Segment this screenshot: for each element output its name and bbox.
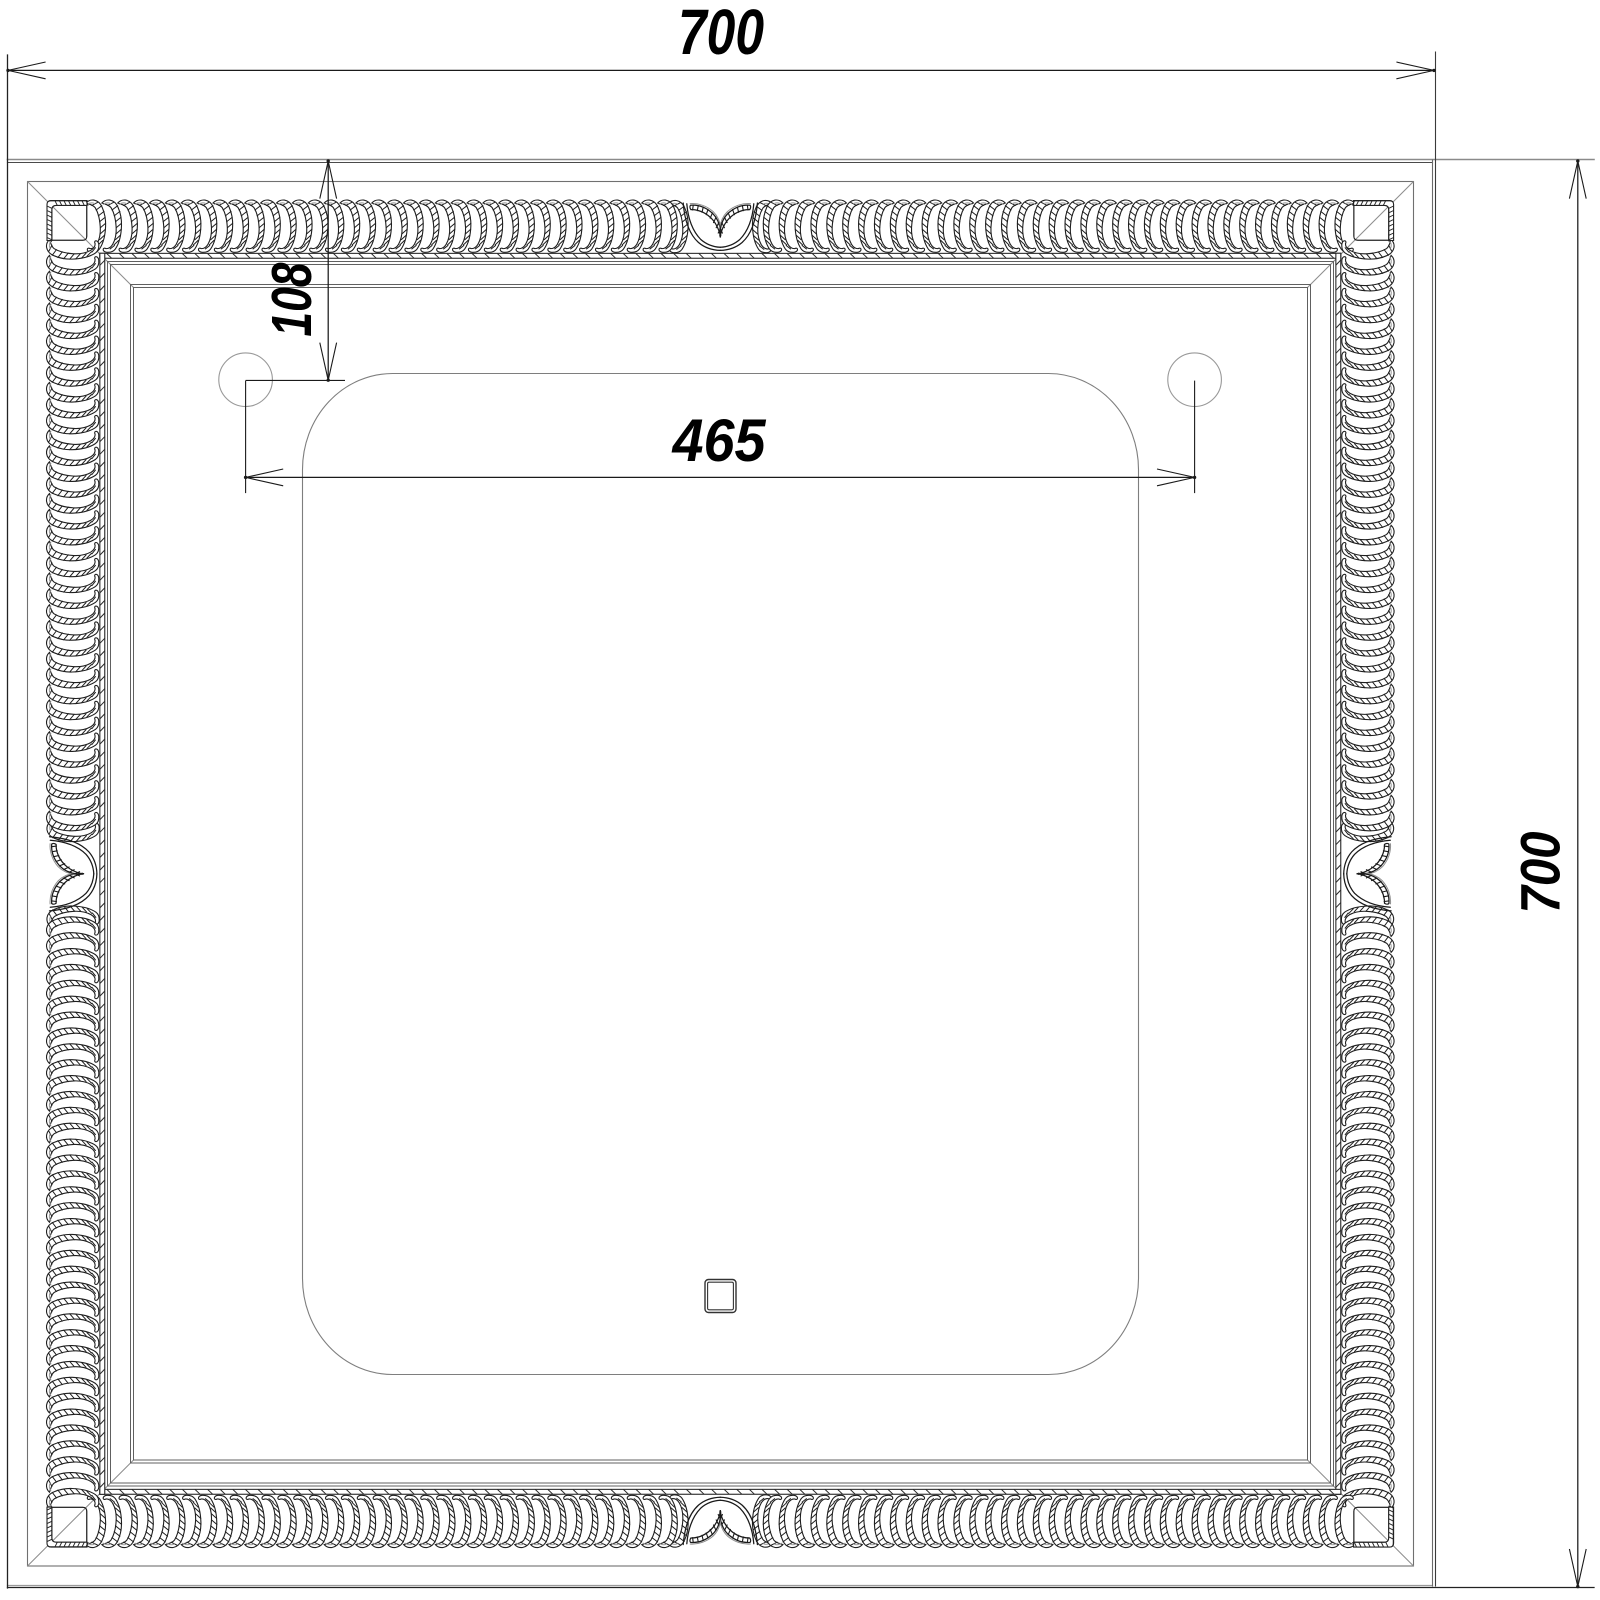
svg-text:700: 700 [1508, 832, 1571, 914]
svg-text:108: 108 [260, 262, 324, 336]
svg-text:700: 700 [678, 0, 764, 68]
svg-text:465: 465 [672, 407, 767, 474]
